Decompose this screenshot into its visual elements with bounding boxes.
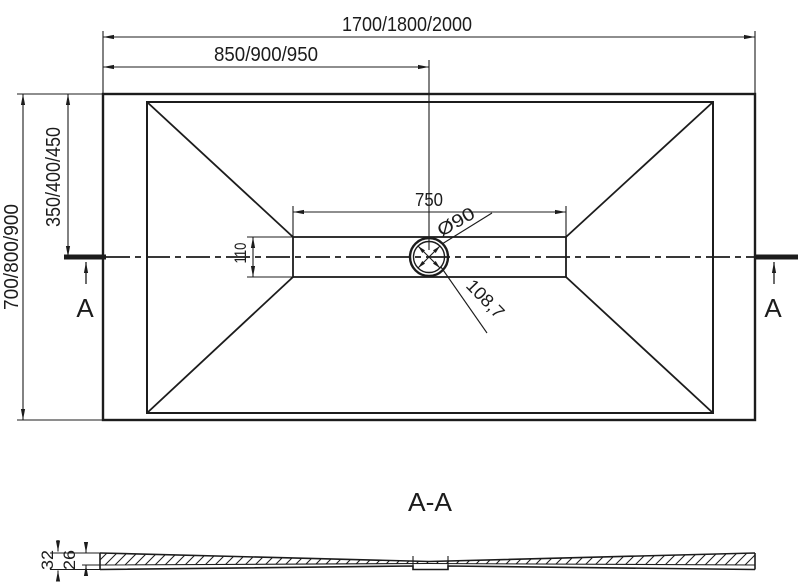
section-view: A-A 32 26 <box>38 487 755 581</box>
technical-drawing-canvas: Ø90 108,7 1700/1800/2000 850/900/950 700… <box>0 0 800 584</box>
drain-diagonal-label: 108,7 <box>462 275 508 322</box>
dim-overall-depth: 700/800/900 <box>1 94 23 420</box>
dim-edge-thickness-label: 26 <box>60 550 79 570</box>
section-bottom-edge <box>100 566 755 570</box>
section-letter-left: A <box>76 293 94 323</box>
dim-center-from-left: 850/900/950 <box>103 44 429 67</box>
section-title: A-A <box>408 487 453 517</box>
dim-total-thickness-label: 32 <box>38 550 57 570</box>
dim-center-from-top: 350/400/450 <box>43 94 68 257</box>
top-view: Ø90 108,7 1700/1800/2000 850/900/950 700… <box>1 14 798 420</box>
slope-line-top-right <box>566 102 713 237</box>
dim-channel-length-label: 750 <box>415 190 443 210</box>
dim-overall-width-label: 1700/1800/2000 <box>342 14 472 36</box>
dim-channel-length: 750 <box>293 190 566 212</box>
dim-overall-width: 1700/1800/2000 <box>103 14 755 37</box>
dim-center-from-top-label: 350/400/450 <box>43 127 65 227</box>
slope-line-top-left <box>147 102 293 237</box>
slope-line-bottom-right <box>566 277 713 413</box>
dim-center-from-left-label: 850/900/950 <box>214 44 318 66</box>
section-letter-right: A <box>764 293 782 323</box>
shower-tray-drawing: Ø90 108,7 1700/1800/2000 850/900/950 700… <box>0 0 800 584</box>
section-marker-right: A <box>756 257 798 323</box>
dim-total-thickness: 32 <box>38 540 58 581</box>
dim-edge-thickness: 26 <box>60 542 86 576</box>
slope-line-bottom-left <box>147 277 293 413</box>
dim-channel-width-label: 110 <box>231 243 250 264</box>
dim-channel-width: 110 <box>231 237 253 277</box>
section-marker-left: A <box>64 257 106 323</box>
dim-overall-depth-label: 700/800/900 <box>1 204 23 310</box>
